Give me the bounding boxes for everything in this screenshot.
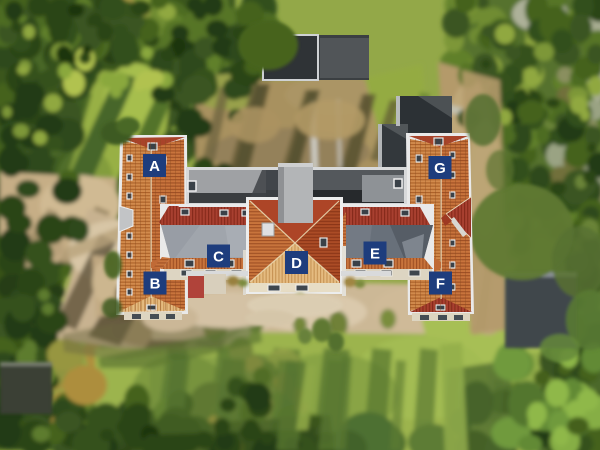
- svg-text:G: G: [434, 160, 446, 177]
- svg-text:E: E: [370, 246, 380, 263]
- svg-text:F: F: [436, 276, 445, 293]
- svg-text:D: D: [291, 255, 302, 272]
- svg-text:B: B: [150, 276, 161, 293]
- svg-text:C: C: [213, 249, 224, 266]
- svg-text:A: A: [149, 158, 160, 175]
